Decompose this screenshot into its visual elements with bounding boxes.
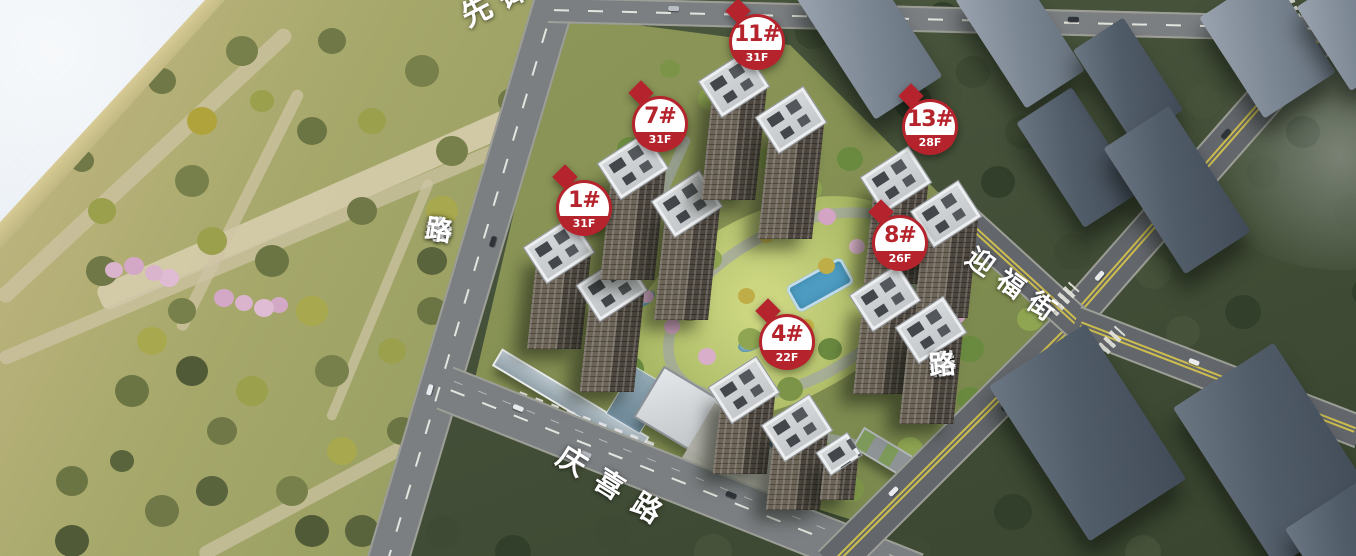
pin-head: 8# 26F bbox=[872, 215, 928, 271]
car bbox=[1068, 17, 1079, 22]
car bbox=[426, 384, 434, 396]
pin-head: 7# 31F bbox=[632, 96, 688, 152]
pin-head: 11# 31F bbox=[729, 14, 785, 70]
cherry-blossom-trees bbox=[105, 262, 123, 278]
car bbox=[668, 6, 679, 11]
pin-head: 1# 31F bbox=[556, 180, 612, 236]
complex-trees bbox=[660, 60, 680, 78]
aerial-site-map: 先锋创意 华泰路 迎福街 祥泰路 庆喜路 1# 31F 7# 31F 11# 3… bbox=[0, 0, 1356, 556]
pin-head: 4# 22F bbox=[759, 314, 815, 370]
pin-head: 13# 28F bbox=[902, 99, 958, 155]
car bbox=[512, 404, 524, 413]
park-trees-yellow bbox=[250, 90, 274, 112]
park-trees-dark bbox=[110, 450, 134, 472]
car bbox=[489, 236, 497, 248]
